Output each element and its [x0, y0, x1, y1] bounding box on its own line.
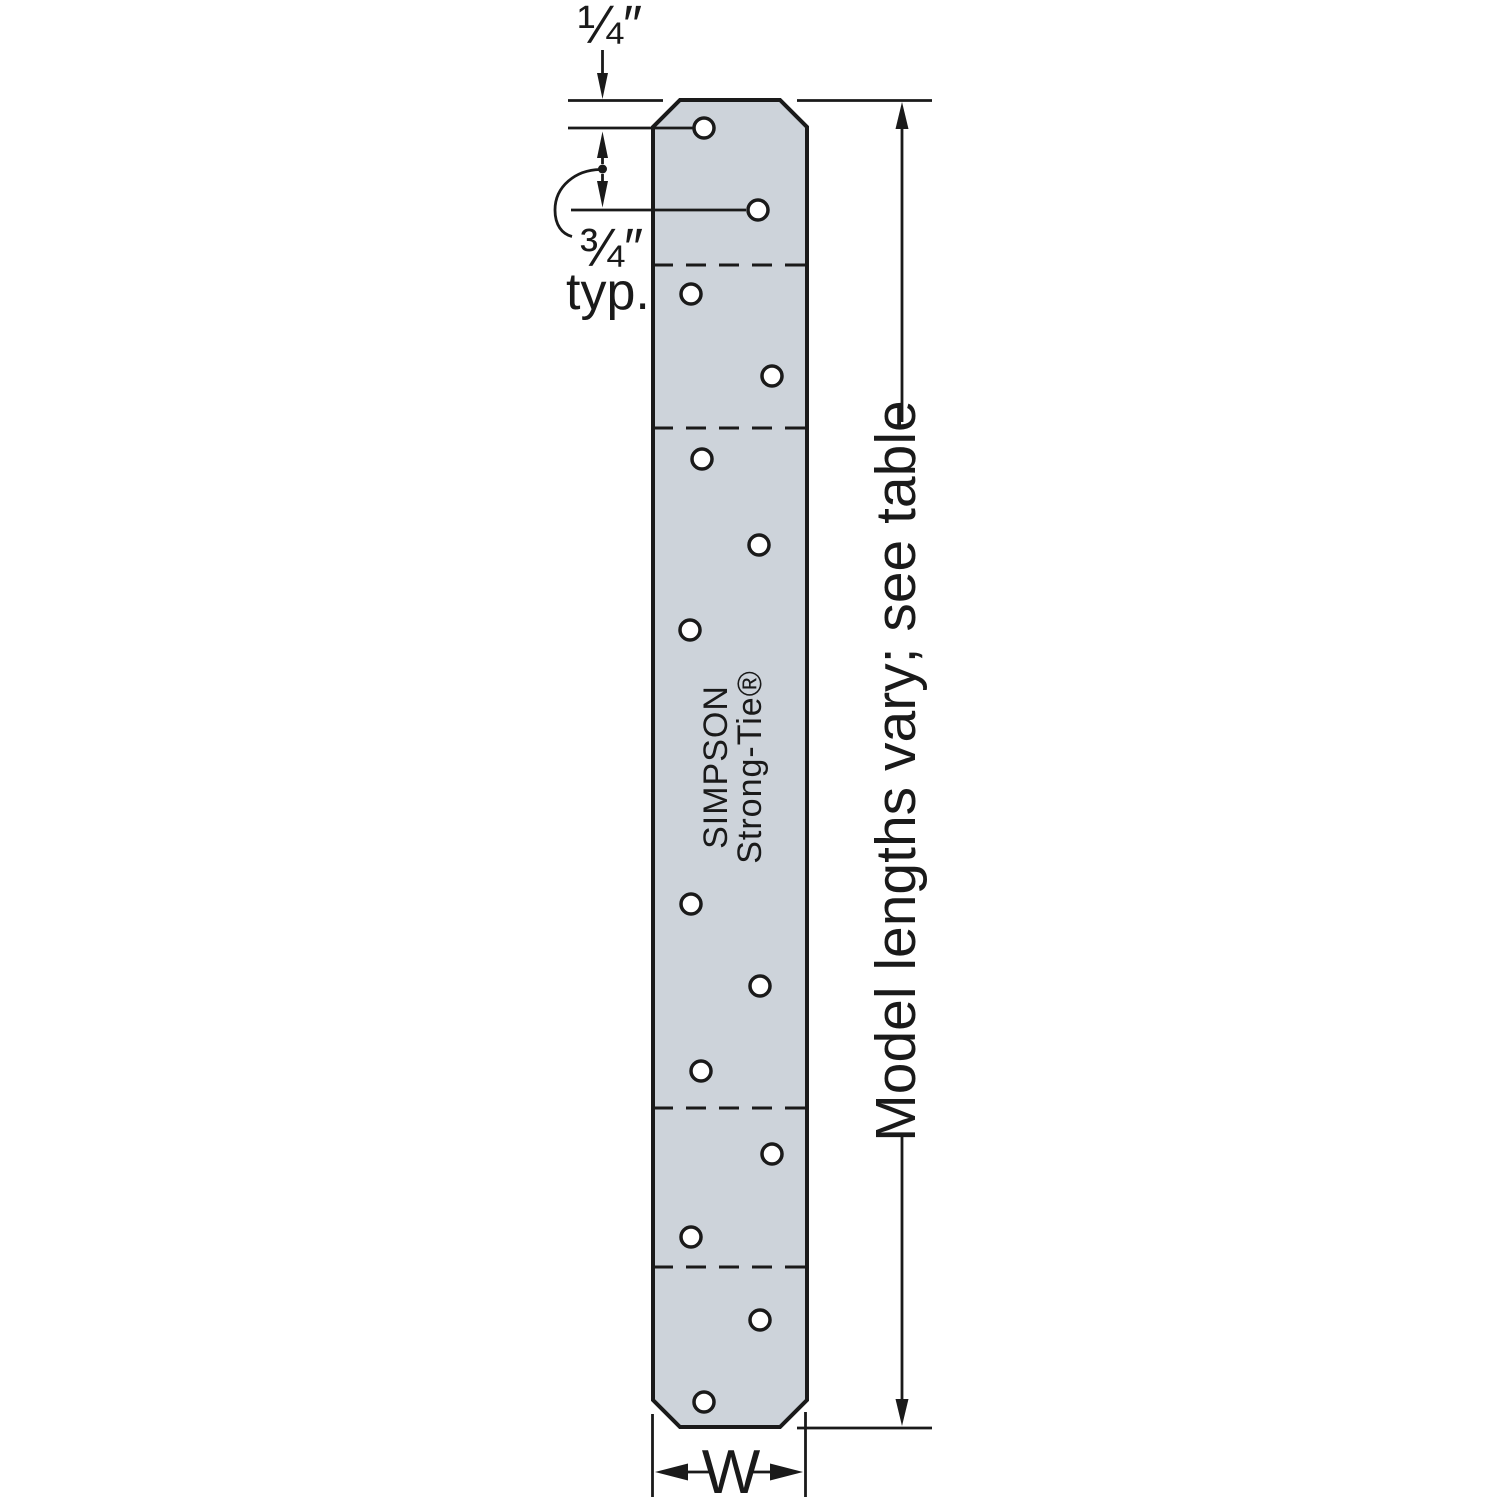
spacing-arrowhead-down	[597, 181, 608, 208]
brand-line2: Strong-Tie®	[731, 670, 769, 864]
nail-hole	[762, 1144, 782, 1164]
quarter-inch-arrowhead	[597, 73, 608, 99]
brand-line1: SIMPSON	[697, 685, 735, 849]
length-note-label: Model lengths vary; see table	[864, 400, 928, 1141]
brand-stamp: SIMPSON Strong-Tie®	[697, 670, 769, 864]
nail-hole	[681, 1227, 701, 1247]
nail-hole	[681, 894, 701, 914]
nail-hole	[694, 1392, 714, 1412]
quarter-inch-label: ¼″	[578, 0, 642, 55]
nail-hole	[762, 366, 782, 386]
nail-hole	[680, 620, 700, 640]
spacing-arrowhead-up	[597, 132, 608, 159]
length-arrowhead-top	[896, 102, 909, 129]
width-arrowhead-right	[770, 1464, 803, 1481]
length-dimension: Model lengths vary; see table	[797, 102, 932, 1428]
nail-hole	[749, 535, 769, 555]
strap-diagram: SIMPSON Strong-Tie® ¼″ ¾″ typ.	[0, 0, 1500, 1500]
nail-hole	[681, 284, 701, 304]
nail-hole	[750, 976, 770, 996]
diagram-stage: SIMPSON Strong-Tie® ¼″ ¾″ typ.	[0, 0, 1500, 1500]
nail-hole	[692, 449, 712, 469]
typ-label: typ.	[566, 263, 650, 321]
width-arrowhead-left	[655, 1464, 688, 1481]
nail-hole	[750, 1310, 770, 1330]
length-arrowhead-bottom	[896, 1399, 909, 1426]
nail-hole	[691, 1061, 711, 1081]
nail-hole	[748, 200, 768, 220]
nail-hole	[694, 118, 714, 138]
width-label: W	[702, 1438, 761, 1500]
